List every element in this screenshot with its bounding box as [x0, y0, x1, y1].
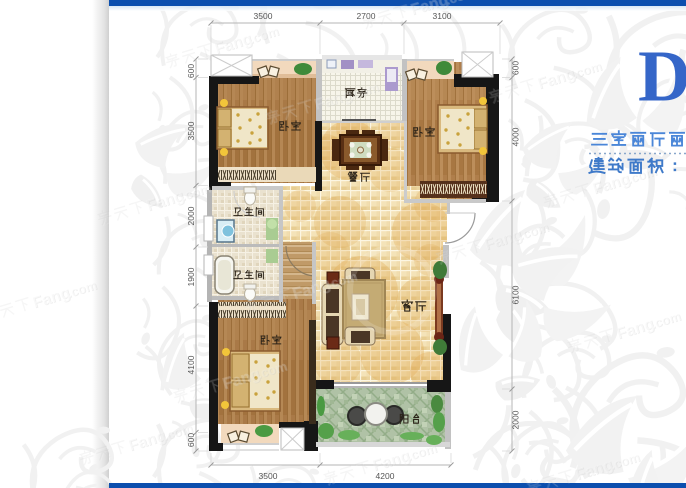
svg-text:3500: 3500 [259, 471, 278, 481]
svg-text:600: 600 [186, 64, 196, 78]
svg-text:3500: 3500 [254, 11, 273, 21]
svg-text:4000: 4000 [511, 127, 521, 146]
svg-text:3500: 3500 [186, 121, 196, 140]
svg-text:4100: 4100 [186, 355, 196, 374]
svg-text:2000: 2000 [186, 206, 196, 225]
svg-text:2000: 2000 [511, 410, 521, 429]
svg-text:6100: 6100 [511, 285, 521, 304]
svg-text:D: D [638, 36, 686, 117]
svg-text:600: 600 [511, 61, 521, 75]
svg-text:1900: 1900 [186, 267, 196, 286]
